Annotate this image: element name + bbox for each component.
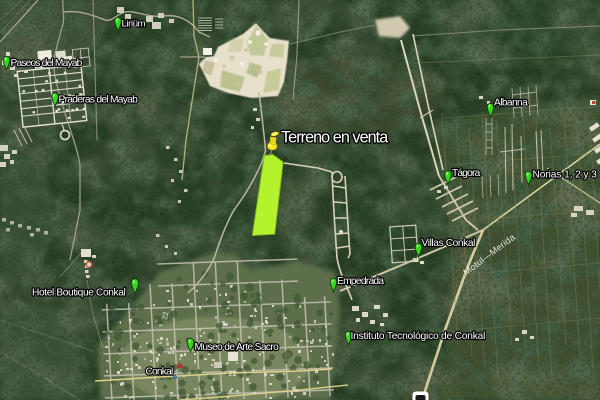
svg-text:Villas Conkal: Villas Conkal	[422, 238, 476, 249]
svg-text:21: 21	[228, 369, 236, 378]
svg-text:Tágora: Tágora	[452, 168, 481, 179]
svg-text:Empedrada: Empedrada	[337, 276, 384, 287]
svg-text:Paseos del Mayab: Paseos del Mayab	[11, 58, 83, 69]
svg-text:Praderas del Mayab: Praderas del Mayab	[59, 95, 139, 106]
svg-text:Terreno en venta: Terreno en venta	[281, 129, 388, 147]
svg-text:Conkal: Conkal	[146, 367, 173, 378]
svg-text:Norias 1, 2 y 3: Norias 1, 2 y 3	[533, 170, 598, 181]
svg-text:Liriüm: Liriüm	[122, 19, 146, 30]
svg-text:Instituto Tecnológico de Conka: Instituto Tecnológico de Conkal	[351, 331, 486, 342]
svg-text:Museo de Arte Sacro: Museo de Arte Sacro	[195, 342, 280, 353]
svg-text:Hotel Boutique Conkal: Hotel Boutique Conkal	[32, 288, 126, 299]
svg-text:Albanna: Albanna	[494, 98, 528, 109]
svg-text:22: 22	[162, 311, 170, 320]
